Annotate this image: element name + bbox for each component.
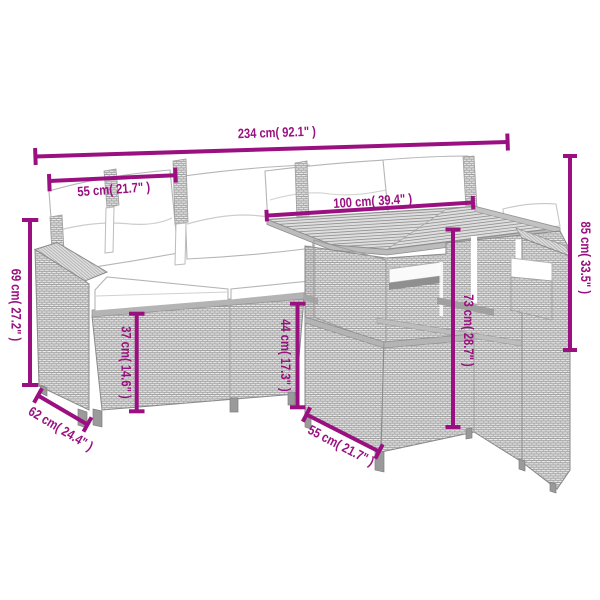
- svg-text:69 cm( 27.2" ): 69 cm( 27.2" ): [9, 269, 24, 342]
- svg-text:37 cm( 14.6" ): 37 cm( 14.6" ): [119, 326, 134, 399]
- svg-text:44 cm( 17.3" ): 44 cm( 17.3" ): [278, 319, 293, 392]
- svg-text:85 cm( 33.5" ): 85 cm( 33.5" ): [578, 222, 593, 295]
- svg-text:234 cm( 92.1" ): 234 cm( 92.1" ): [238, 124, 316, 142]
- svg-text:73 cm( 28.7" ): 73 cm( 28.7" ): [461, 294, 476, 367]
